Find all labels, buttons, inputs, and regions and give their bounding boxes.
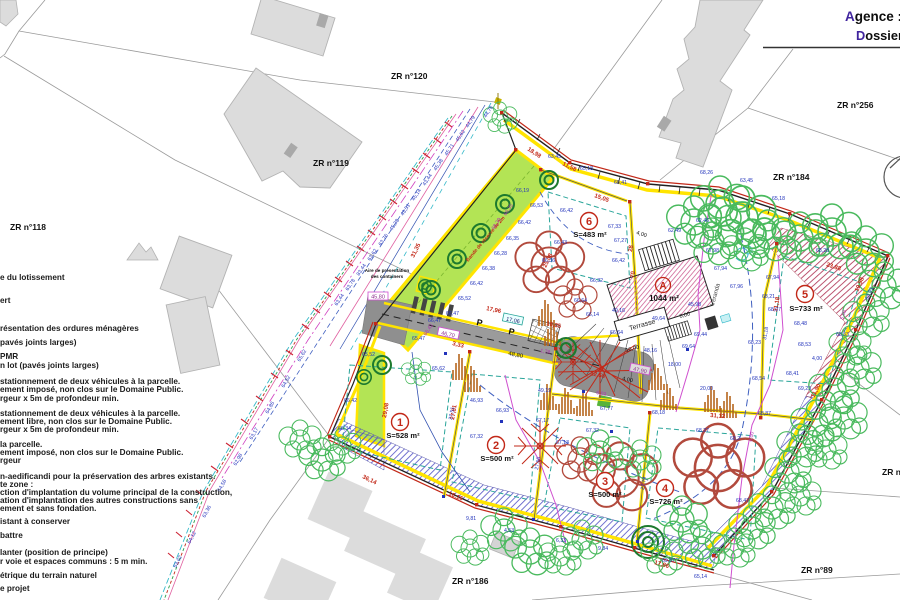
svg-text:66,42: 66,42: [518, 220, 531, 226]
svg-text:6,33: 6,33: [556, 538, 566, 544]
svg-text:65,52: 65,52: [362, 352, 375, 358]
svg-text:5: 5: [802, 289, 808, 301]
svg-text:4,53: 4,53: [504, 528, 514, 534]
svg-text:ZR n°186: ZR n°186: [452, 576, 489, 586]
svg-text:65,18: 65,18: [772, 196, 785, 202]
svg-text:ZR n°184: ZR n°184: [773, 172, 810, 182]
svg-text:S=500 m²: S=500 m²: [480, 454, 514, 463]
svg-text:67,27: 67,27: [614, 238, 627, 244]
svg-text:istant à conserver: istant à conserver: [0, 517, 71, 526]
svg-text:67,98: 67,98: [706, 248, 719, 254]
svg-text:66,38: 66,38: [482, 266, 495, 272]
svg-text:n lot (pavés joints larges): n lot (pavés joints larges): [0, 361, 99, 370]
svg-text:Dossier: Dossier: [856, 28, 900, 43]
svg-text:66,28: 66,28: [494, 251, 507, 257]
svg-text:20,00: 20,00: [700, 386, 713, 392]
svg-text:1044 m²: 1044 m²: [649, 294, 679, 303]
svg-text:63,45: 63,45: [740, 178, 753, 184]
svg-text:66,42: 66,42: [560, 208, 573, 214]
svg-text:rgeur: rgeur: [0, 456, 22, 465]
svg-text:66,19: 66,19: [516, 188, 529, 194]
svg-text:68,18: 68,18: [652, 410, 665, 416]
svg-text:66,93: 66,93: [496, 408, 509, 414]
svg-text:67,33: 67,33: [608, 224, 621, 230]
svg-text:S=528 m²: S=528 m²: [386, 431, 420, 440]
svg-text:ZR n: ZR n: [882, 467, 900, 477]
svg-text:45,98: 45,98: [688, 302, 701, 308]
svg-text:68,28: 68,28: [816, 248, 829, 254]
svg-text:4: 4: [662, 483, 669, 495]
svg-text:68,54: 68,54: [752, 376, 765, 382]
svg-text:e projet: e projet: [0, 584, 30, 593]
svg-text:68,53: 68,53: [836, 332, 849, 338]
svg-text:des containers: des containers: [371, 274, 404, 279]
svg-text:67,13: 67,13: [556, 440, 569, 446]
svg-text:66,43: 66,43: [554, 240, 567, 246]
svg-text:68,47: 68,47: [736, 498, 749, 504]
svg-text:S=733 m²: S=733 m²: [789, 304, 823, 313]
svg-text:ZR n°120: ZR n°120: [391, 71, 428, 81]
svg-text:66,32: 66,32: [590, 278, 603, 284]
svg-text:ement imposé, non clos sur le: ement imposé, non clos sur le Domaine Pu…: [0, 448, 183, 457]
svg-text:69,64: 69,64: [682, 344, 695, 350]
svg-text:A: A: [659, 281, 666, 292]
svg-text:68,2: 68,2: [730, 436, 740, 442]
svg-text:3: 3: [602, 476, 608, 488]
svg-text:65,18: 65,18: [580, 166, 593, 172]
svg-text:66,35: 66,35: [506, 236, 519, 242]
svg-text:49,64: 49,64: [652, 316, 665, 322]
svg-text:battre: battre: [0, 531, 23, 540]
svg-text:66,42: 66,42: [470, 281, 483, 287]
svg-text:ement imposé, non clos sur le: ement imposé, non clos sur le Domaine Pu…: [0, 385, 183, 394]
svg-text:9,81: 9,81: [466, 516, 476, 522]
svg-text:étrique du terrain naturel: étrique du terrain naturel: [0, 571, 97, 580]
svg-text:67,32: 67,32: [586, 428, 599, 434]
svg-text:ement et sans fondation.: ement et sans fondation.: [0, 504, 96, 513]
svg-text:r voie et espaces communs : 5: r voie et espaces communs : 5 m min.: [0, 557, 147, 566]
svg-text:rgeur x 5m de profondeur min.: rgeur x 5m de profondeur min.: [0, 425, 119, 434]
svg-text:ert: ert: [0, 296, 11, 305]
svg-text:49,19: 49,19: [538, 388, 551, 394]
svg-text:49,16: 49,16: [612, 308, 625, 314]
svg-text:68,87: 68,87: [758, 411, 771, 417]
svg-text:68,23: 68,23: [748, 340, 761, 346]
svg-text:68,41: 68,41: [786, 371, 799, 377]
svg-text:lanter (position de principe): lanter (position de principe): [0, 548, 108, 557]
svg-text:62,49: 62,49: [668, 228, 681, 234]
svg-text:ZR n°119: ZR n°119: [313, 158, 349, 168]
svg-text:69,44: 69,44: [694, 332, 707, 338]
svg-text:4,00: 4,00: [812, 356, 822, 362]
svg-text:ZR n°89: ZR n°89: [801, 565, 833, 575]
svg-text:rgeur x 5m de profondeur min.: rgeur x 5m de profondeur min.: [0, 394, 119, 403]
svg-text:66,42: 66,42: [612, 258, 625, 264]
svg-text:66,64: 66,64: [574, 298, 587, 304]
svg-text:PMR: PMR: [0, 352, 18, 361]
svg-text:S=726 m²: S=726 m²: [649, 497, 683, 506]
svg-text:65,62: 65,62: [432, 366, 445, 372]
svg-text:66,34: 66,34: [338, 426, 351, 432]
svg-text:2: 2: [493, 440, 499, 452]
svg-text:62,46: 62,46: [696, 218, 709, 224]
svg-text:66,53: 66,53: [530, 203, 543, 209]
svg-text:68,48: 68,48: [794, 321, 807, 327]
svg-text:65,14: 65,14: [694, 574, 707, 580]
svg-text:Agence :: Agence :: [845, 9, 900, 24]
svg-text:pavés joints larges): pavés joints larges): [0, 338, 77, 347]
svg-text:67,94: 67,94: [714, 266, 727, 272]
svg-text:67,32: 67,32: [470, 434, 483, 440]
svg-text:48,16: 48,16: [644, 348, 657, 354]
svg-text:68,21: 68,21: [762, 294, 775, 300]
svg-text:68,07: 68,07: [768, 307, 781, 313]
svg-text:69,87: 69,87: [662, 558, 675, 564]
svg-text:S=500 m²: S=500 m²: [588, 490, 622, 499]
svg-text:résentation des ordures ménagè: résentation des ordures ménagères: [0, 324, 139, 333]
svg-text:S=483 m²: S=483 m²: [573, 230, 607, 239]
svg-text:67,77: 67,77: [600, 406, 613, 412]
svg-text:9,84: 9,84: [598, 546, 608, 552]
svg-text:ZR n°118: ZR n°118: [10, 222, 46, 232]
svg-text:67,17: 67,17: [536, 418, 549, 424]
svg-text:66,36: 66,36: [542, 258, 555, 264]
svg-text:Aire de présentation: Aire de présentation: [365, 268, 410, 273]
svg-text:66,42: 66,42: [344, 398, 357, 404]
svg-text:66,64: 66,64: [610, 330, 623, 336]
svg-text:18,00: 18,00: [668, 362, 681, 368]
svg-text:ZR n°256: ZR n°256: [837, 100, 874, 110]
svg-text:31,12: 31,12: [710, 413, 726, 420]
svg-text:65,47: 65,47: [412, 336, 425, 342]
svg-text:46,93: 46,93: [470, 398, 483, 404]
svg-text:63,45: 63,45: [548, 154, 561, 160]
svg-text:1: 1: [397, 417, 403, 429]
svg-text:68,53: 68,53: [798, 342, 811, 348]
svg-text:67,94: 67,94: [766, 275, 779, 281]
svg-text:67,96: 67,96: [730, 284, 743, 290]
svg-text:65,52: 65,52: [458, 296, 471, 302]
svg-text:45,80: 45,80: [371, 295, 385, 301]
svg-text:66,14: 66,14: [586, 312, 599, 318]
svg-text:69,23: 69,23: [798, 386, 811, 392]
svg-text:e du lotissement: e du lotissement: [0, 273, 65, 282]
svg-text:68,27: 68,27: [696, 428, 709, 434]
svg-text:6: 6: [586, 216, 592, 228]
svg-text:68,26: 68,26: [700, 170, 713, 176]
svg-text:68,41: 68,41: [614, 180, 627, 186]
svg-text:66,47: 66,47: [446, 311, 459, 317]
